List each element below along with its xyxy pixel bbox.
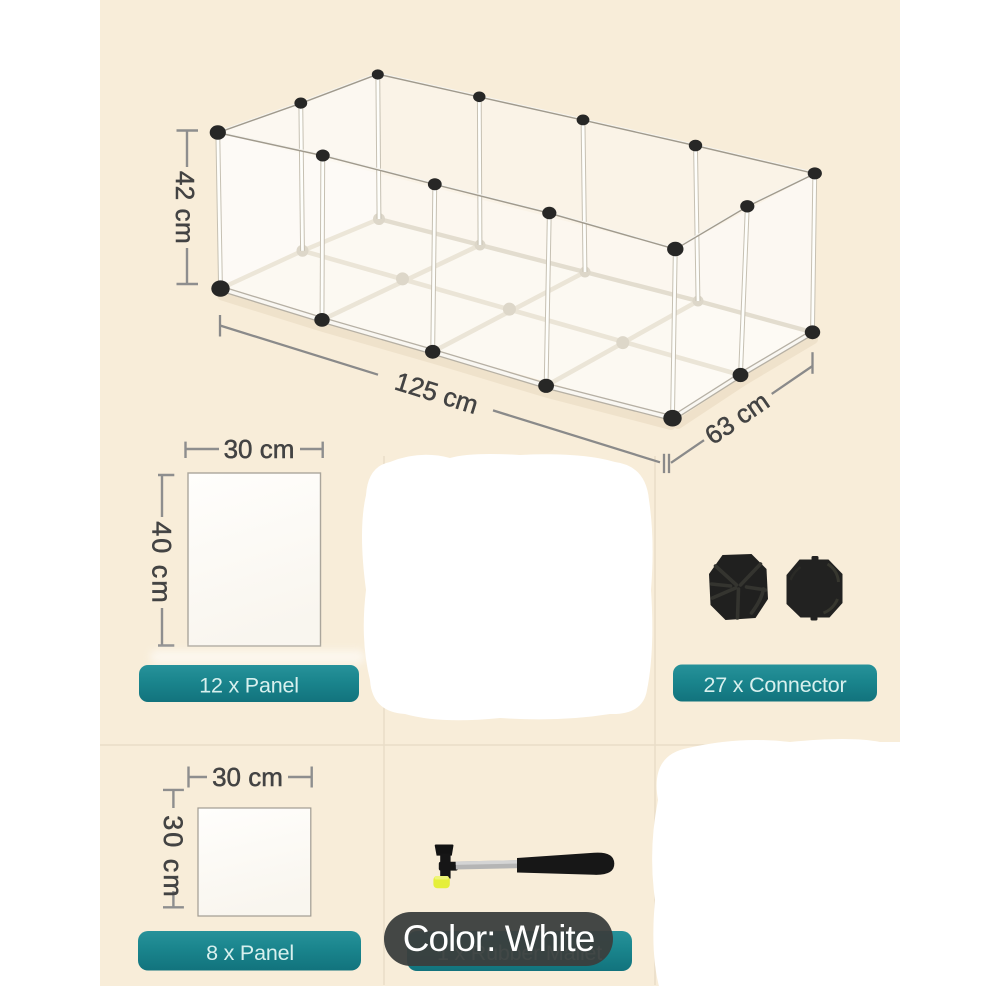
svg-text:Color: White: Color: White: [403, 918, 595, 959]
svg-text:30 cm: 30 cm: [224, 434, 295, 464]
svg-text:30 cm: 30 cm: [212, 762, 283, 792]
svg-text:12 x Panel: 12 x Panel: [199, 674, 299, 698]
svg-text:40 cm: 40 cm: [147, 521, 177, 605]
svg-text:30 cm: 30 cm: [158, 815, 188, 899]
svg-text:42 cm: 42 cm: [170, 171, 200, 244]
svg-text:27 x Connector: 27 x Connector: [703, 673, 846, 697]
svg-text:8 x Panel: 8 x Panel: [206, 941, 294, 965]
